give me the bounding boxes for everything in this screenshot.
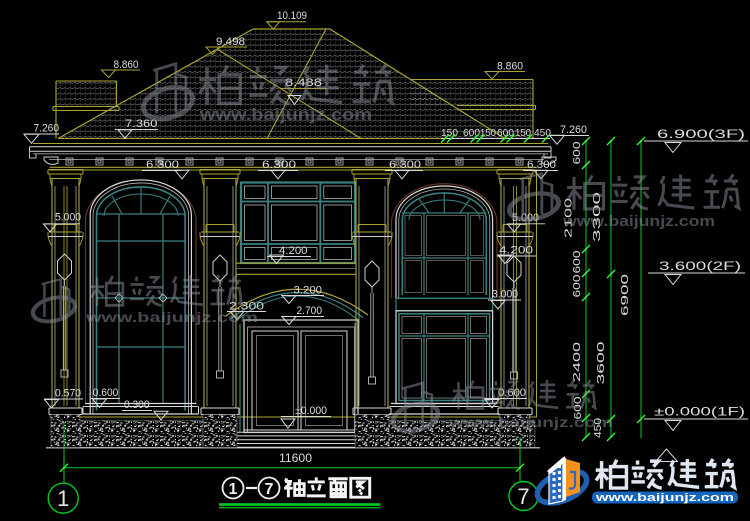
svg-text:6.300: 6.300: [389, 159, 421, 171]
svg-text:8.860: 8.860: [497, 61, 523, 73]
svg-text:±0.000(1F): ±0.000(1F): [654, 407, 745, 419]
svg-text:600: 600: [572, 141, 583, 165]
svg-text:3.200: 3.200: [294, 285, 323, 297]
svg-text:150: 150: [441, 127, 458, 139]
svg-text:6.300: 6.300: [146, 159, 179, 171]
svg-text:3.600(2F): 3.600(2F): [659, 261, 741, 273]
svg-text:600: 600: [572, 250, 583, 274]
svg-text:±0.000: ±0.000: [295, 405, 327, 417]
svg-text:1: 1: [57, 486, 69, 511]
svg-text:9.498: 9.498: [216, 36, 245, 48]
svg-text:3600: 3600: [596, 341, 607, 385]
svg-text:7: 7: [517, 484, 529, 509]
svg-text:www.baijunjz.com: www.baijunjz.com: [562, 214, 715, 230]
svg-text:www.baijunjz.com: www.baijunjz.com: [199, 105, 372, 124]
svg-text:2400: 2400: [572, 341, 583, 382]
svg-text:5.000: 5.000: [55, 212, 81, 224]
svg-text:7.260: 7.260: [560, 124, 587, 136]
svg-text:10.109: 10.109: [277, 10, 307, 22]
svg-text:8.860: 8.860: [114, 59, 139, 71]
svg-text:www.baijunjz.com: www.baijunjz.com: [448, 415, 613, 430]
svg-text:7.260: 7.260: [34, 123, 60, 135]
svg-text:0.300: 0.300: [124, 399, 150, 411]
svg-text:0.600: 0.600: [93, 387, 119, 399]
svg-text:6.300: 6.300: [262, 159, 296, 171]
svg-text:450: 450: [534, 127, 551, 139]
svg-text:600: 600: [463, 127, 480, 139]
svg-text:600: 600: [572, 274, 583, 298]
svg-text:11600: 11600: [279, 453, 312, 465]
svg-text:6.300: 6.300: [527, 159, 556, 171]
svg-text:6.900(3F): 6.900(3F): [657, 129, 745, 141]
svg-text:2.700: 2.700: [297, 305, 323, 317]
svg-text:www.baijunjz.com: www.baijunjz.com: [85, 310, 258, 325]
svg-text:7: 7: [265, 481, 274, 498]
svg-text:www.baijunjz.com: www.baijunjz.com: [595, 492, 735, 504]
svg-text:6900: 6900: [620, 273, 631, 316]
svg-text:0.570: 0.570: [55, 388, 81, 400]
svg-text:3.000: 3.000: [492, 289, 518, 301]
svg-text:1: 1: [229, 481, 238, 498]
